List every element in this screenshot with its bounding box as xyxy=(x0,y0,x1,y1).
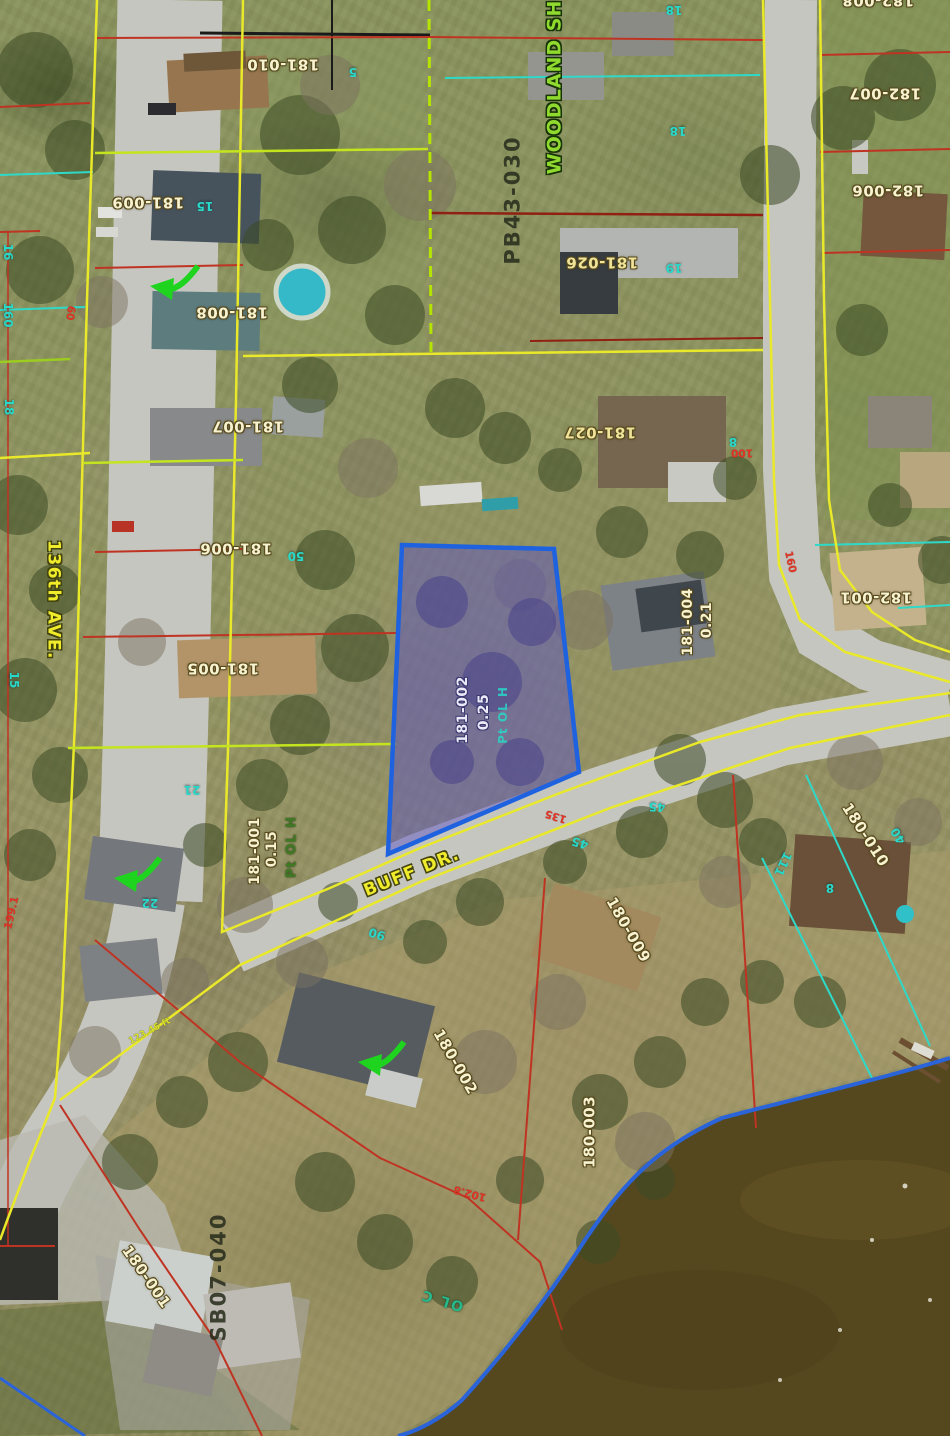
section-dashed-line xyxy=(429,0,431,352)
gis-parcel-map-canvas[interactable]: 181-010 181-009 181-008 181-007 181-006 … xyxy=(0,0,950,1436)
map-overlay-graphics xyxy=(0,0,950,1436)
